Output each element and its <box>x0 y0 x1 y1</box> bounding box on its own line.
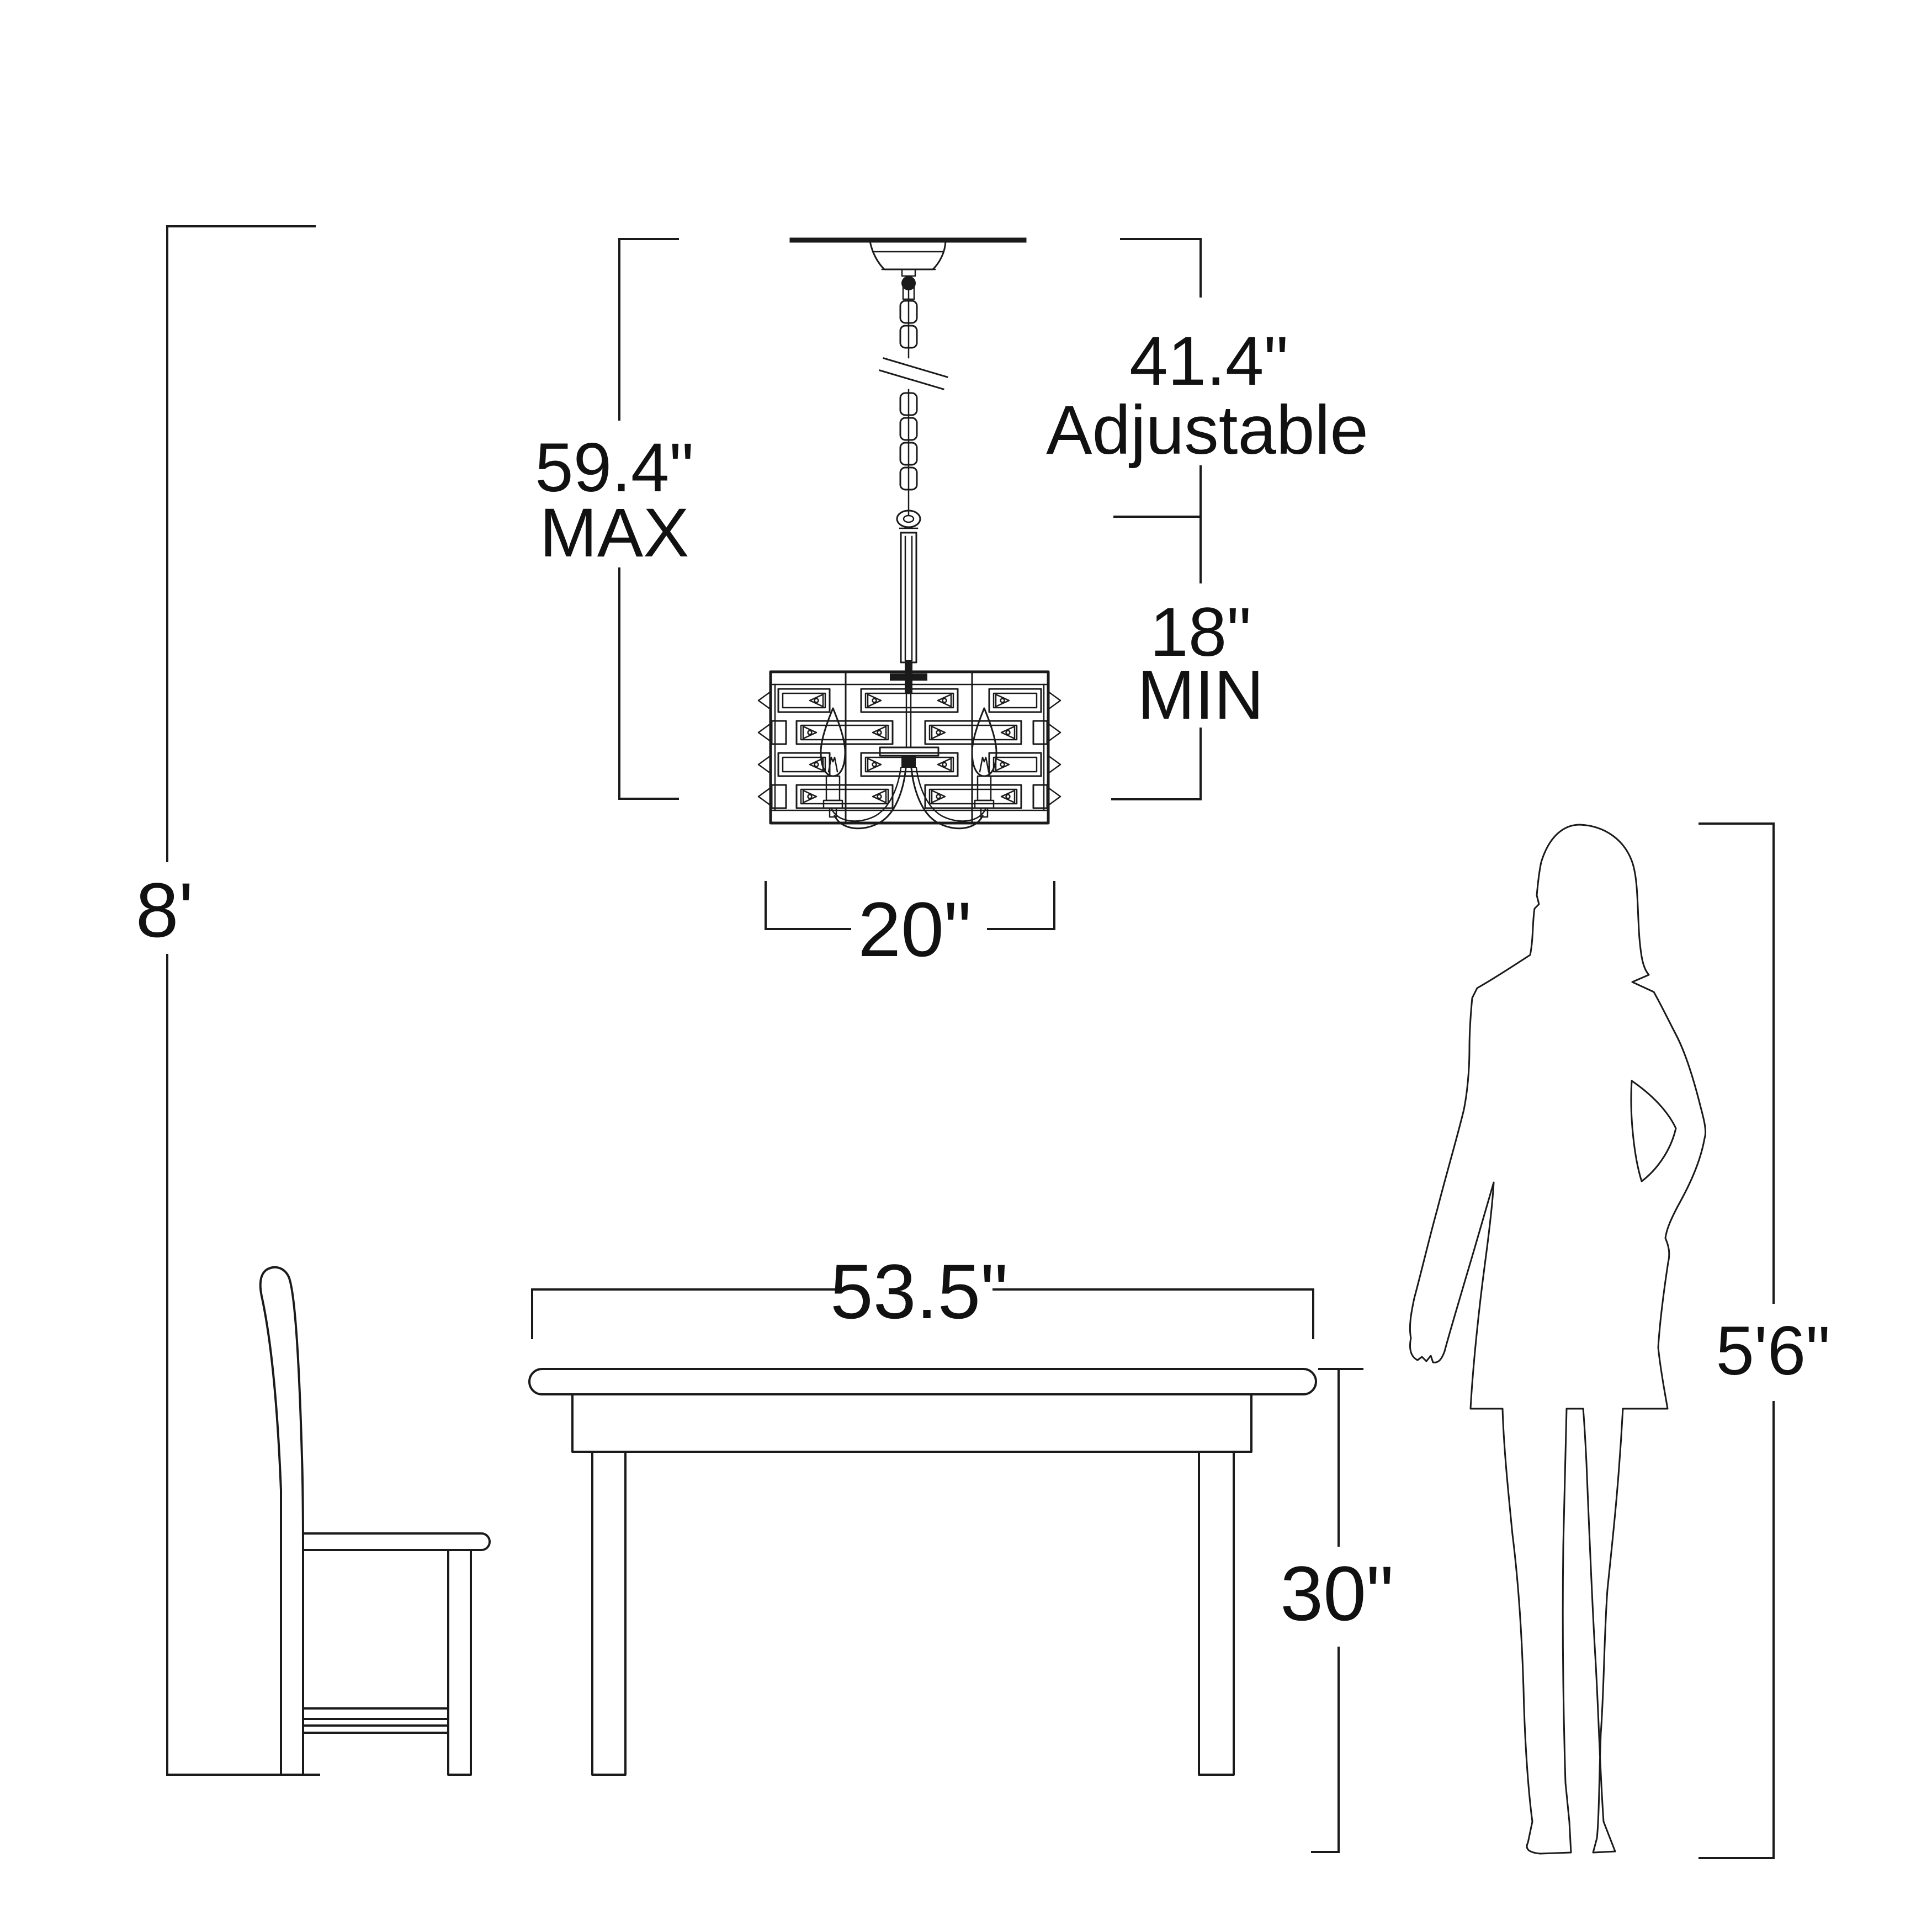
chandelier-shade <box>758 672 1060 829</box>
crystal-dot <box>815 763 819 767</box>
dimension-person-height: 5'6" <box>1700 824 1830 1858</box>
label-fixture-max-qualifier: MAX <box>540 495 689 571</box>
table-leg-right <box>1199 1452 1234 1775</box>
dimension-table-height: 30" <box>1280 1369 1393 1852</box>
chair-stretcher <box>303 1726 448 1733</box>
label-ceiling-height: 8' <box>136 867 194 953</box>
dimension-ceiling-height: 8' <box>136 226 315 1775</box>
dimension-fixture-max: 59.4" MAX <box>535 239 694 799</box>
crystal-bar-stub <box>772 721 786 744</box>
chair <box>261 1267 490 1775</box>
candle-left <box>821 708 845 817</box>
dimension-fixture-width: 20" <box>766 882 1054 973</box>
crystal-chevron <box>1001 726 1015 739</box>
crystal-dot <box>937 731 941 735</box>
crystal-dot <box>943 699 947 703</box>
spike-right <box>1048 724 1060 741</box>
crystal-chevron <box>996 694 1009 707</box>
person-arm-gap <box>1631 1081 1676 1181</box>
spike-right <box>1048 692 1060 709</box>
spike-left <box>758 788 771 805</box>
canopy-neck <box>902 269 915 276</box>
crystal-bar-inner <box>801 789 888 804</box>
crystal-bar-row <box>772 721 1047 744</box>
spike-left <box>758 724 771 741</box>
crystal-dot <box>1006 795 1010 799</box>
crystal-dot <box>808 731 812 735</box>
table-apron <box>572 1394 1251 1452</box>
label-min-qualifier: MIN <box>1137 657 1264 734</box>
candle-sleeve <box>978 776 991 800</box>
crystal-dot <box>1006 731 1010 735</box>
crystal-chevron <box>932 726 945 739</box>
chair-stretcher <box>303 1708 448 1719</box>
crystal-bar <box>797 785 893 808</box>
crystal-dot <box>937 795 941 799</box>
spike-left <box>758 756 771 773</box>
candle-right <box>972 708 996 817</box>
label-table-width: 53.5" <box>830 1248 1008 1335</box>
crystal-chevron <box>803 790 816 803</box>
crystal-chevron <box>938 758 951 771</box>
crystal-bar-inner <box>801 725 888 740</box>
rod-body <box>901 533 916 662</box>
crystal-dot <box>873 763 877 767</box>
person-silhouette <box>1410 825 1705 1854</box>
crystal-dot <box>878 731 882 735</box>
label-adjustable-qualifier: Adjustable <box>1046 392 1368 469</box>
spike-right <box>1048 788 1060 805</box>
dimension-diagram-page: 8' 59.4" MAX 41.4" Adjustable 18" MIN 20… <box>0 0 1932 1932</box>
crystal-dot <box>1001 763 1005 767</box>
chair-back-inner <box>268 1267 303 1775</box>
crystal-dot <box>815 699 819 703</box>
label-adjustable: 41.4" <box>1129 323 1288 400</box>
bulb-filament <box>980 757 989 772</box>
crystal-bar-inner <box>866 693 953 708</box>
crystal-chevron <box>803 726 816 739</box>
hanging-chain <box>880 286 947 514</box>
crystal-chevron <box>873 726 886 739</box>
bulb <box>972 708 996 776</box>
crystal-chevron <box>868 694 881 707</box>
crystal-bar-row <box>772 785 1047 808</box>
crystal-chevron <box>996 758 1009 771</box>
crystal-bar-stub <box>772 785 786 808</box>
crystal-chevron <box>810 694 823 707</box>
chair-back-outer <box>261 1269 281 1775</box>
dimension-adjustable: 41.4" Adjustable <box>1046 239 1368 517</box>
crystal-chevron <box>1001 790 1015 803</box>
rod-loop-inner <box>904 516 914 522</box>
crystal-chevron <box>868 758 881 771</box>
chair-seat <box>303 1533 490 1550</box>
spike-right <box>1048 756 1060 773</box>
label-fixture-width: 20" <box>858 886 971 973</box>
crystal-bar <box>989 689 1041 712</box>
crystal-bar-stub <box>1033 721 1047 744</box>
crystal-dot <box>873 699 877 703</box>
label-person-height: 5'6" <box>1716 1313 1830 1389</box>
crystal-dot <box>1001 699 1005 703</box>
canopy-bell <box>870 241 946 269</box>
crystal-bar-stub <box>1033 785 1047 808</box>
crystal-dot <box>943 763 947 767</box>
crystal-bar-inner <box>930 725 1017 740</box>
crystal-bar <box>925 785 1021 808</box>
table-top <box>529 1369 1316 1394</box>
crystal-dot <box>878 795 882 799</box>
dimension-min: 18" MIN <box>1112 517 1264 799</box>
dining-table <box>529 1369 1316 1775</box>
dimension-diagram: 8' 59.4" MAX 41.4" Adjustable 18" MIN 20… <box>0 0 1932 1932</box>
candle-sleeve <box>826 776 840 800</box>
table-leg-left <box>592 1452 625 1775</box>
chair-front-leg <box>448 1550 471 1775</box>
rod-inner <box>906 693 911 747</box>
ceiling-canopy <box>870 241 946 290</box>
shade-side-spikes <box>758 692 1060 805</box>
bulb <box>821 708 845 776</box>
hub-bar <box>880 747 938 756</box>
crystal-chevron <box>938 694 951 707</box>
person-outline <box>1410 825 1705 1854</box>
crystal-bar-inner <box>930 789 1017 804</box>
crystal-chevron <box>873 790 886 803</box>
chandelier <box>758 241 1060 829</box>
spike-left <box>758 692 771 709</box>
crystal-chevron <box>932 790 945 803</box>
rod-finial-cross <box>890 673 927 681</box>
crystal-bar <box>778 689 830 712</box>
label-table-height: 30" <box>1280 1550 1393 1637</box>
crystal-dot <box>808 795 812 799</box>
dimension-table-width: 53.5" <box>532 1248 1313 1338</box>
hub-block <box>901 756 916 768</box>
